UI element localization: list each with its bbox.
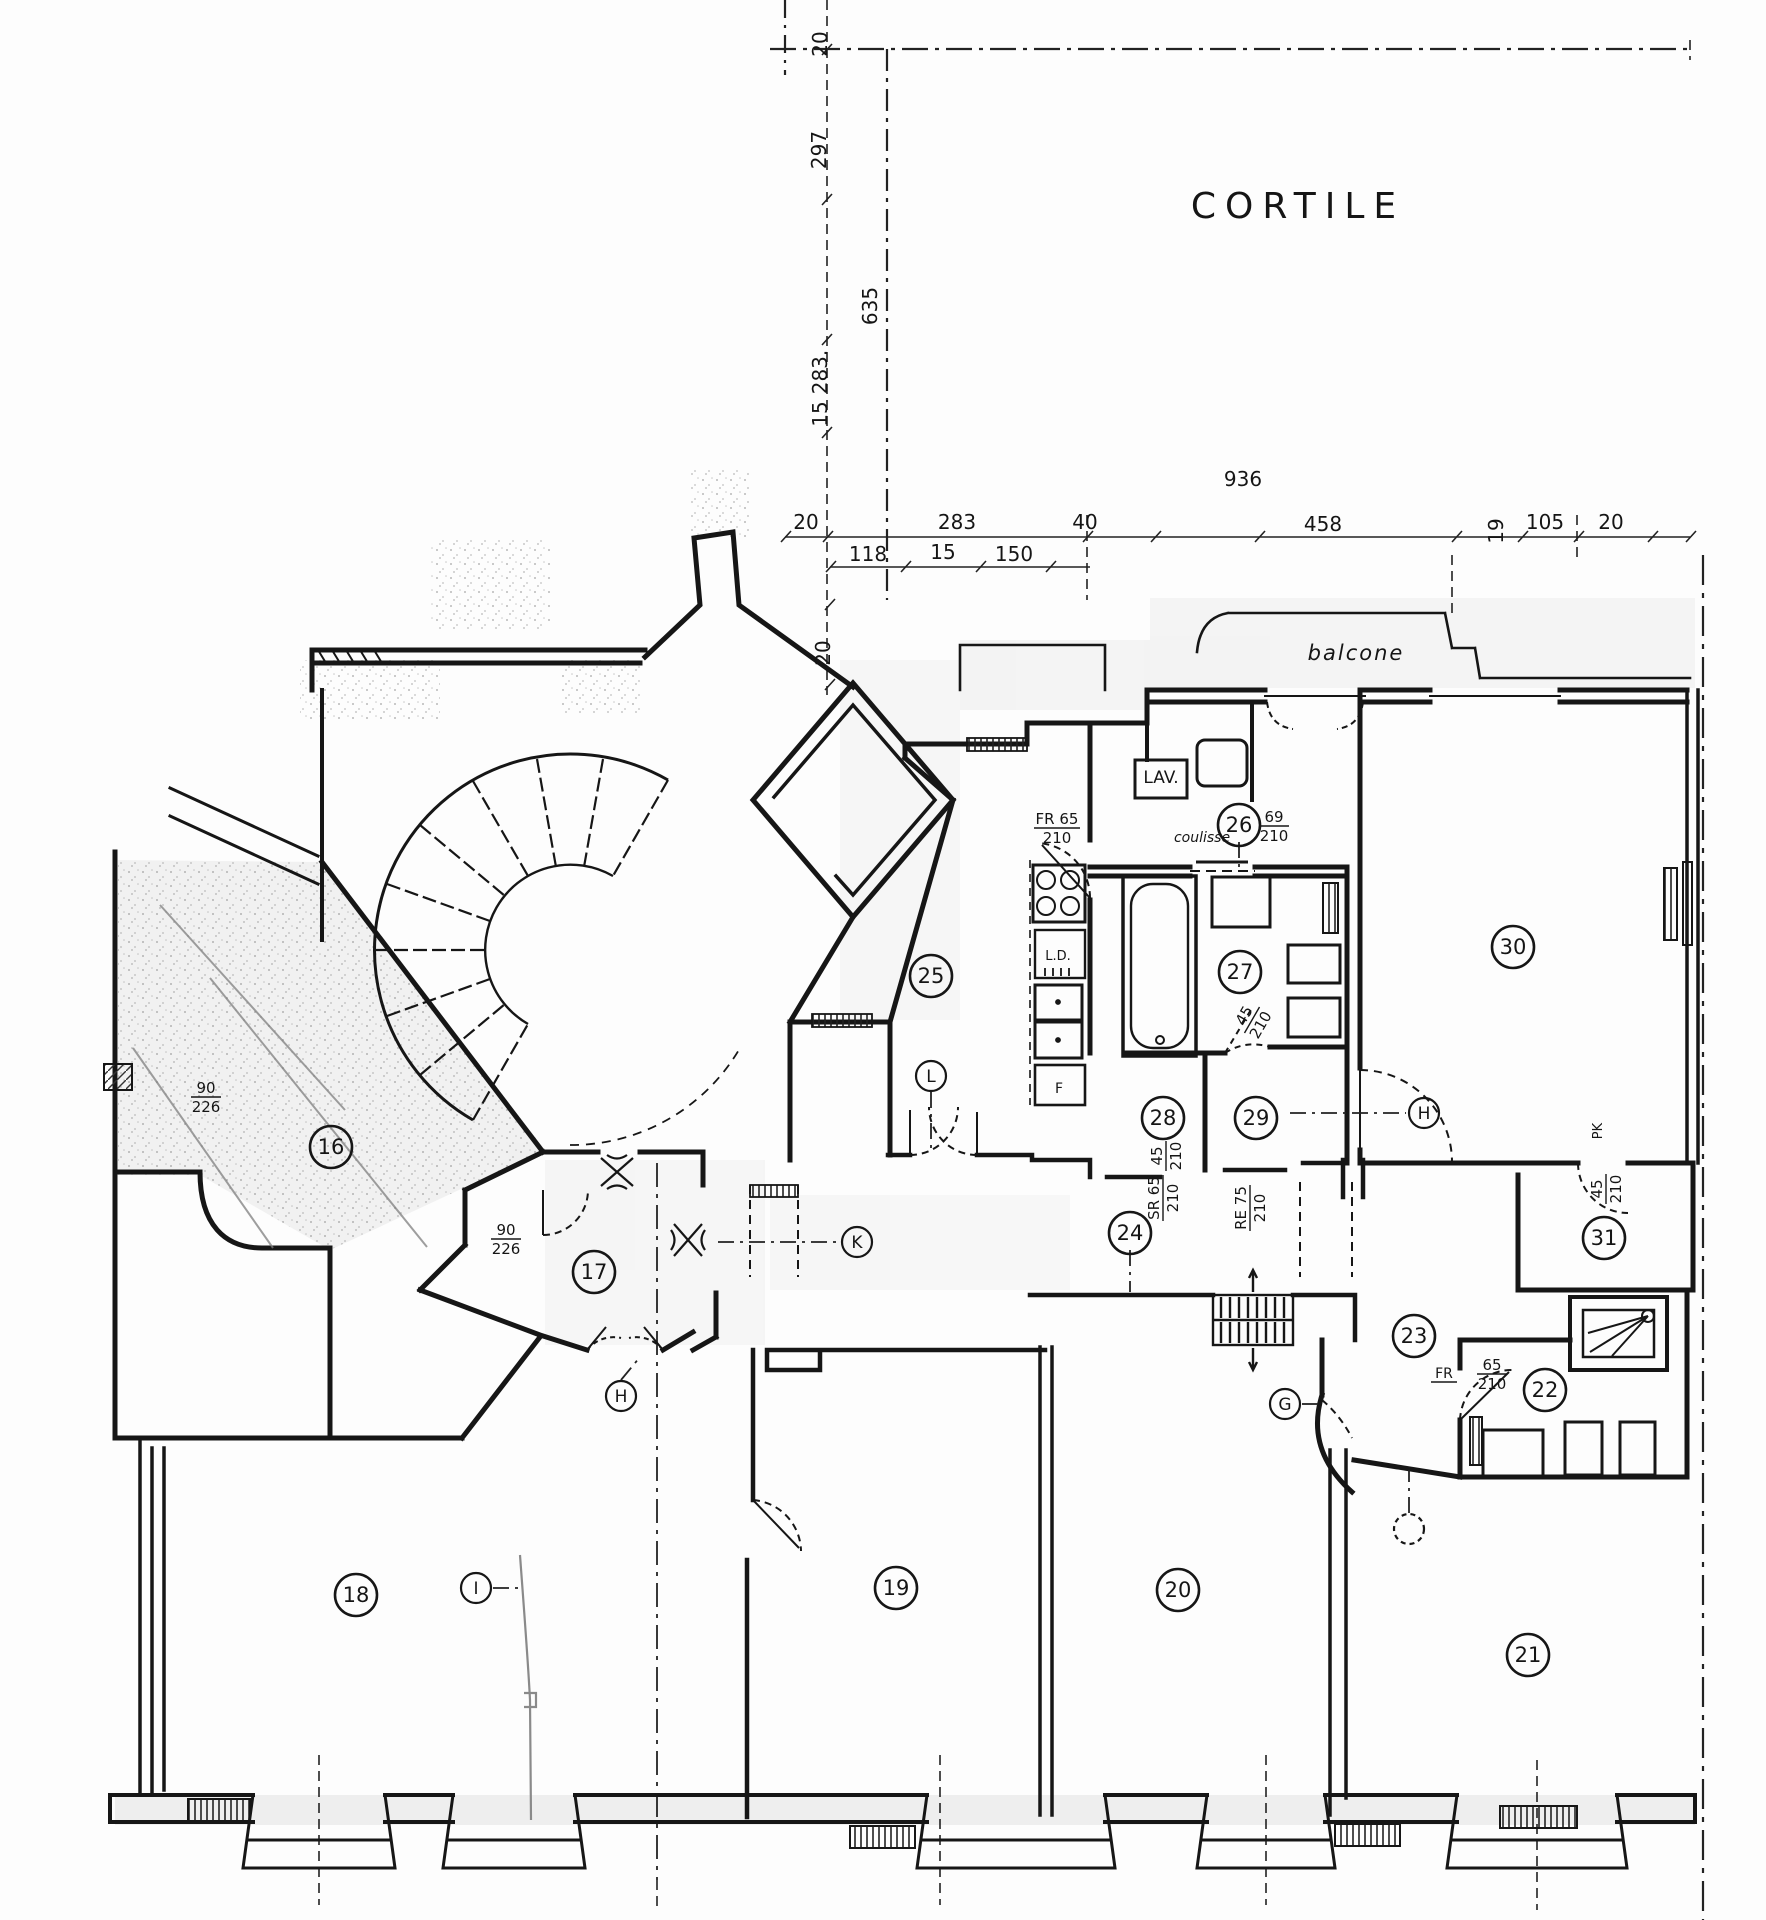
- door-size-label: 45210: [1229, 998, 1276, 1042]
- svg-text:23: 23: [1401, 1324, 1428, 1348]
- dimension-text: 150: [995, 542, 1033, 566]
- fixture-label: F: [1055, 1081, 1063, 1097]
- bathtub-drain: [1156, 1036, 1164, 1044]
- cabinet-3: [1620, 1422, 1655, 1475]
- scan-noise: [118, 470, 750, 1250]
- radiator-room27: [1323, 883, 1338, 933]
- door-letter-circle: H: [1409, 1098, 1439, 1128]
- wc: [1212, 877, 1270, 927]
- room-number-circle: 19: [875, 1567, 917, 1609]
- room-number-circle: 28: [1142, 1097, 1184, 1139]
- svg-text:H: H: [615, 1387, 628, 1407]
- svg-text:22: 22: [1532, 1378, 1559, 1402]
- boundary-lines: [657, 0, 1703, 1920]
- shelf-2: [1288, 998, 1340, 1037]
- dimension-text-vertical: 297: [807, 131, 831, 169]
- svg-text:210: 210: [1164, 1184, 1182, 1213]
- svg-text:45: 45: [1148, 1146, 1166, 1165]
- door-size-label: 45210: [1148, 1141, 1185, 1171]
- svg-text:16: 16: [318, 1135, 345, 1159]
- svg-text:90: 90: [196, 1079, 215, 1097]
- fixture-label: coulisse: [1174, 830, 1230, 846]
- grille-lightwell: [812, 1014, 872, 1027]
- door-size-label: FR 65210: [1034, 810, 1080, 847]
- svg-text:210: 210: [1478, 1375, 1507, 1393]
- stair-arrow-up: [1249, 1270, 1257, 1292]
- radiator-room20: [1335, 1824, 1400, 1846]
- dimension-text-vertical: 20: [811, 640, 835, 665]
- door-letter-circle: G: [1270, 1389, 1300, 1419]
- shelf-1: [1288, 945, 1340, 983]
- pillar-hatch: [104, 1064, 132, 1090]
- svg-text:30: 30: [1500, 935, 1527, 959]
- dimension-text: 15: [930, 540, 955, 564]
- grille-corridor: [750, 1185, 798, 1197]
- fixture-label: PK: [1591, 1122, 1606, 1139]
- dimension-text: 458: [1304, 512, 1342, 536]
- svg-text:coulisse: coulisse: [1174, 830, 1230, 846]
- door-size-label: 69210: [1259, 808, 1289, 845]
- room-number-circle: 23: [1393, 1315, 1435, 1357]
- dimension-text: 20: [793, 510, 818, 534]
- svg-text:20: 20: [1165, 1578, 1192, 1602]
- dimension-text: 20: [1598, 510, 1623, 534]
- area-label-cortile: CORTILE: [1191, 186, 1405, 227]
- svg-text:19: 19: [883, 1576, 910, 1600]
- dimension-text-vertical: 15: [808, 401, 832, 426]
- svg-text:28: 28: [1150, 1106, 1177, 1130]
- svg-text:LAV.: LAV.: [1143, 768, 1178, 788]
- floor-plan-scan: CORTILEbalcone16171819202122232425262728…: [0, 0, 1766, 1920]
- svg-text:226: 226: [492, 1240, 521, 1258]
- svg-text:24: 24: [1117, 1221, 1144, 1245]
- svg-text:PK: PK: [1591, 1122, 1606, 1139]
- svg-text:FR 65: FR 65: [1036, 810, 1079, 828]
- door-size-label: 90226: [491, 1221, 521, 1258]
- grille-room25: [967, 738, 1027, 751]
- svg-text:18: 18: [343, 1583, 370, 1607]
- svg-text:210: 210: [1607, 1175, 1625, 1204]
- svg-text:L: L: [926, 1067, 936, 1087]
- dimension-text: 118: [849, 542, 887, 566]
- door-size-label: 45210: [1588, 1174, 1625, 1204]
- svg-text:F: F: [1055, 1081, 1063, 1097]
- bathtub: [1131, 884, 1188, 1048]
- radiator-room18: [188, 1799, 250, 1821]
- fixture-label: FR: [1431, 1366, 1457, 1382]
- dimension-text: 105: [1526, 510, 1564, 534]
- svg-text:210: 210: [1167, 1142, 1185, 1171]
- svg-text:31: 31: [1591, 1226, 1618, 1250]
- svg-text:65: 65: [1482, 1356, 1501, 1374]
- room-number-circle: 20: [1157, 1569, 1199, 1611]
- bathtub-frame: [1123, 876, 1196, 1056]
- pencil-partition: [520, 1555, 536, 1820]
- room-number-circle: 31: [1583, 1217, 1625, 1259]
- spiral-staircase: [375, 754, 740, 1145]
- room-number-circle: 22: [1524, 1369, 1566, 1411]
- svg-text:29: 29: [1243, 1106, 1270, 1130]
- radiator-room19: [850, 1826, 915, 1848]
- doors: [543, 702, 1628, 1551]
- cabinet-2: [1565, 1422, 1602, 1475]
- svg-text:90: 90: [496, 1221, 515, 1239]
- area-label-balcone: balcone: [1308, 641, 1405, 665]
- cabinet-1: [1483, 1430, 1543, 1477]
- svg-text:L.D.: L.D.: [1045, 949, 1071, 964]
- svg-text:226: 226: [192, 1098, 221, 1116]
- svg-text:210: 210: [1043, 829, 1072, 847]
- svg-text:17: 17: [581, 1260, 608, 1284]
- svg-text:45: 45: [1588, 1179, 1606, 1198]
- room-number-circle: 30: [1492, 926, 1534, 968]
- fixture-label: LAV.: [1143, 768, 1178, 788]
- svg-text:210: 210: [1260, 827, 1289, 845]
- dimension-ticks: [781, 44, 1696, 690]
- door-size-label: RE 75210: [1232, 1185, 1269, 1231]
- svg-text:G: G: [1278, 1395, 1291, 1415]
- radiator-room21: [1500, 1806, 1577, 1828]
- internal-stairs: [1213, 1270, 1293, 1370]
- fixture-label: L.D.: [1045, 949, 1071, 964]
- room-number-circle: 18: [335, 1574, 377, 1616]
- door-size-label: SR 65210: [1145, 1175, 1182, 1221]
- stair-arrow-down: [1249, 1348, 1257, 1370]
- dimension-text-vertical: 283.: [808, 350, 832, 395]
- door-size-label: 65210: [1477, 1356, 1507, 1393]
- svg-text:27: 27: [1227, 960, 1254, 984]
- radiator-room30: [1664, 868, 1677, 940]
- svg-text:69: 69: [1264, 808, 1283, 826]
- svg-text:210: 210: [1251, 1194, 1269, 1223]
- dimension-text-vertical: 20: [808, 31, 832, 56]
- floor-plan-drawing: CORTILEbalcone16171819202122232425262728…: [0, 0, 1766, 1920]
- svg-text:K: K: [851, 1233, 863, 1253]
- room-number-circle: 27: [1219, 951, 1261, 993]
- door-letter-circle: L: [916, 1061, 946, 1091]
- svg-text:I: I: [473, 1579, 478, 1599]
- radiator-room22: [1470, 1417, 1482, 1465]
- svg-text:H: H: [1418, 1104, 1431, 1124]
- room-number-circle: 29: [1235, 1097, 1277, 1139]
- washer: [1197, 740, 1247, 786]
- door-letter-circle: H: [606, 1381, 636, 1411]
- svg-text:25: 25: [918, 964, 945, 988]
- svg-text:RE 75: RE 75: [1232, 1186, 1250, 1230]
- dimension-text: 936: [1224, 467, 1262, 491]
- dimension-text: 40: [1072, 510, 1097, 534]
- svg-text:21: 21: [1515, 1643, 1542, 1667]
- svg-text:SR 65: SR 65: [1145, 1176, 1163, 1220]
- dimension-text-vertical: 19: [1484, 518, 1508, 543]
- room-number-circle: 21: [1507, 1634, 1549, 1676]
- dimension-text-vertical: 635: [858, 287, 882, 325]
- door-letter-circle: I: [461, 1573, 491, 1603]
- dimension-text: 283: [938, 510, 976, 534]
- door-letter-circle: [1394, 1514, 1424, 1544]
- svg-text:FR: FR: [1435, 1366, 1453, 1382]
